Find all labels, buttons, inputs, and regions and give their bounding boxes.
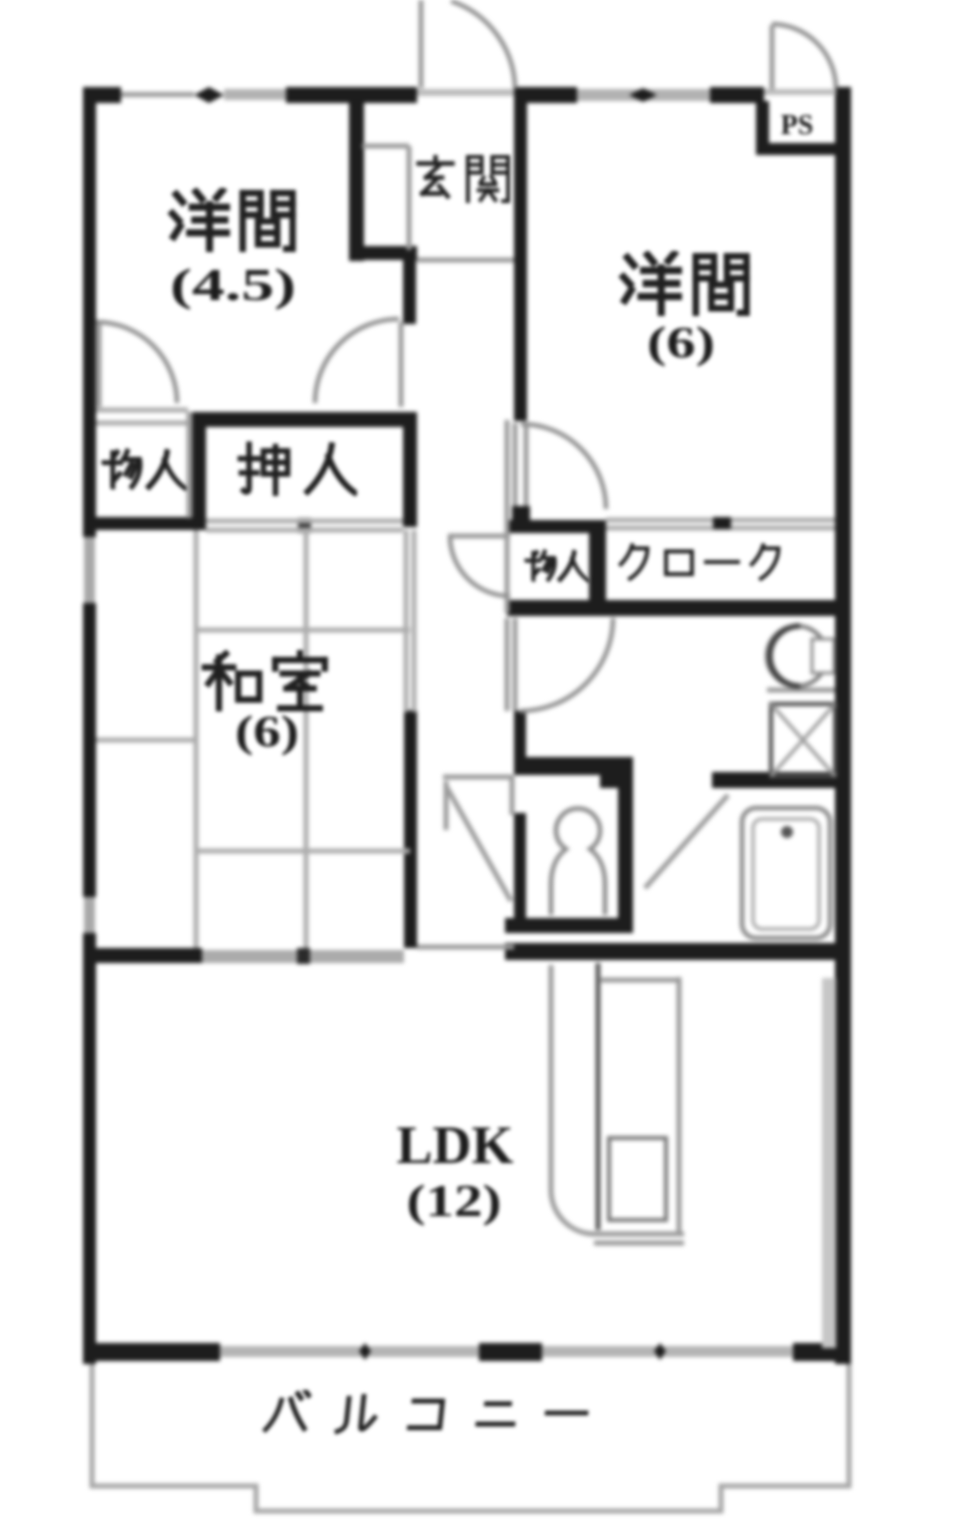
svg-text:PS: PS [781,110,814,141]
svg-text:(6): (6) [647,318,715,367]
svg-text:LDK: LDK [396,1115,513,1175]
svg-text:(12): (12) [407,1175,502,1226]
svg-text:(4.5): (4.5) [170,259,296,310]
svg-text:(6): (6) [235,707,299,756]
